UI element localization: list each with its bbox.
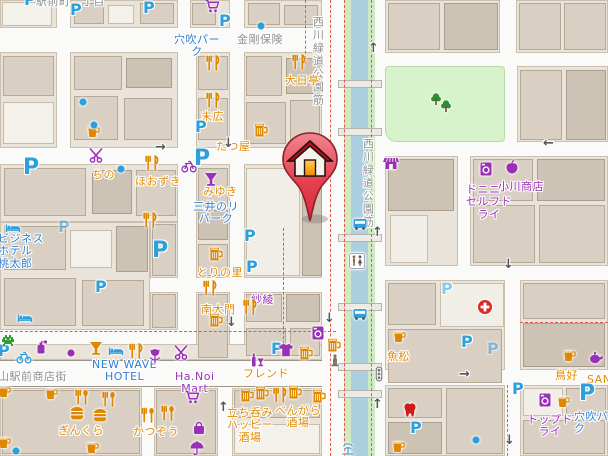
fork-spoon-icon <box>140 407 156 423</box>
parking-icon: P <box>244 228 256 244</box>
map-label: 穴吹パー ク <box>574 411 608 436</box>
parking-icon: P <box>143 0 155 16</box>
map-label: 大日亭 <box>285 75 320 87</box>
beer-icon <box>239 387 255 403</box>
fork-knife-icon <box>242 299 258 315</box>
oneway-arrow-down-icon: ↓ <box>504 434 515 447</box>
map-label: 三井のリ パーク <box>193 201 239 226</box>
parking-icon: P <box>24 0 36 8</box>
cup-icon <box>0 383 12 399</box>
dot-icon <box>75 94 91 110</box>
map-label: トップド ライ <box>527 414 573 439</box>
map-label: ほおずき <box>135 176 181 188</box>
cart-icon <box>204 0 220 14</box>
perfume-icon <box>33 339 49 355</box>
fork-knife-icon <box>291 54 307 70</box>
map-label: みゆき <box>203 186 238 198</box>
scissors-icon <box>89 148 105 164</box>
burger-icon <box>69 405 85 421</box>
tulip-icon <box>147 348 163 364</box>
apple-icon <box>504 159 520 175</box>
parking-icon: P <box>246 259 258 275</box>
fork-knife-icon <box>144 155 160 171</box>
parking-icon: P <box>58 219 70 235</box>
dot-icon <box>63 345 79 361</box>
oneway-arrow-up-icon: ↑ <box>368 42 379 55</box>
beer-icon <box>254 385 270 401</box>
destination-marker-pin[interactable] <box>281 132 339 226</box>
oneway-arrow-down-icon: ↓ <box>223 137 234 150</box>
cup-icon <box>84 439 100 455</box>
toilet-icon <box>349 253 365 269</box>
map-label: 山駅前商店街 <box>0 371 67 383</box>
washer-icon <box>310 325 326 341</box>
bag-icon <box>191 420 207 436</box>
cup-icon <box>561 347 577 363</box>
beer-icon <box>298 345 314 361</box>
map-label: 立ち呑み ハッピー 酒場 <box>227 407 273 444</box>
shop-icon <box>383 155 399 171</box>
dot-icon <box>86 117 102 133</box>
umbrella-icon <box>189 440 205 456</box>
oneway-arrow-down-icon: ↓ <box>503 258 514 271</box>
beer-icon <box>311 388 327 404</box>
beer-icon <box>208 246 224 262</box>
dot-icon <box>253 18 269 34</box>
oneway-arrow-right-icon: → <box>459 368 470 381</box>
scissors-icon <box>174 345 190 361</box>
washer-icon <box>537 392 553 408</box>
fork-knife-icon <box>128 343 144 359</box>
oneway-arrow-up-icon: ↑ <box>372 226 383 239</box>
bed-icon <box>108 342 124 358</box>
map-label: 鳥好 <box>555 370 578 382</box>
poi-layer: 駅前町二丁目金剛保険西川緑道公園筋西川緑道公園筋山駅前商店街穴吹パー ク三井のリ… <box>0 0 608 456</box>
parking-icon: P <box>195 119 207 135</box>
parking-icon: P <box>70 2 82 18</box>
parking-icon: P <box>219 13 231 29</box>
fork-spoon-icon <box>101 391 117 407</box>
map-label: 魚松 <box>387 351 410 363</box>
map-label: かつぞう <box>133 426 179 438</box>
parking-icon: P <box>410 420 422 436</box>
parking-icon: P <box>95 279 107 295</box>
dot-icon <box>468 432 484 448</box>
map-label: 西川緑道公園筋 <box>311 16 323 107</box>
oneway-arrow-up-icon: ↑ <box>372 398 383 411</box>
cup-icon <box>390 438 406 454</box>
fountain-icon <box>340 440 356 456</box>
beer-icon <box>287 384 303 400</box>
beer-icon <box>253 122 269 138</box>
oneway-arrow-right-icon: → <box>155 141 166 154</box>
bus-icon <box>352 216 368 232</box>
bottle-glass-icon <box>249 352 265 368</box>
map-canvas[interactable]: 駅前町二丁目金剛保険西川緑道公園筋西川緑道公園筋山駅前商店街穴吹パー ク三井のリ… <box>0 0 608 456</box>
bicycle-icon <box>16 349 32 365</box>
map-label: 小川商店 <box>498 181 544 193</box>
beer-icon <box>208 312 224 328</box>
cart-icon <box>184 389 200 405</box>
parking-icon: P <box>23 157 39 179</box>
map-label: フレンド <box>243 368 289 380</box>
parking-icon: P <box>441 281 453 297</box>
fork-knife-icon <box>272 387 288 403</box>
bicycle-icon <box>181 158 197 174</box>
map-label: べんがら 酒場 <box>275 405 321 430</box>
parking-icon: P <box>579 383 595 405</box>
beer-icon <box>326 337 342 353</box>
map-label: とりの里 <box>197 267 243 279</box>
oneway-arrow-down-icon: ↓ <box>226 316 237 329</box>
burger-icon <box>92 407 108 423</box>
tshirt-icon <box>278 342 294 358</box>
bed-icon <box>17 309 33 325</box>
oneway-arrow-up-icon: ↑ <box>218 401 229 414</box>
marker-shadow <box>302 215 328 224</box>
statue-icon <box>327 352 343 368</box>
oneway-arrow-left-icon: ← <box>543 137 554 150</box>
invader-icon <box>0 332 16 348</box>
fork-knife-icon <box>205 55 221 71</box>
map-label: ビジネス ホテル 桃太郎 <box>0 233 44 270</box>
fork-knife-icon <box>142 212 158 228</box>
cocktail-icon <box>88 340 104 356</box>
red-cross-icon <box>477 299 493 315</box>
dot-icon <box>113 161 129 177</box>
fork-spoon-icon <box>160 405 176 421</box>
parking-icon: P <box>152 240 168 262</box>
cup-icon <box>43 385 59 401</box>
parking-icon: P <box>461 334 473 350</box>
map-label: ぎんくら <box>58 425 104 437</box>
fork-knife-icon <box>202 280 218 296</box>
oneway-arrow-down-icon: ↓ <box>324 312 335 325</box>
cup-icon <box>391 328 407 344</box>
traffic-light-icon <box>371 366 387 382</box>
teapot-icon <box>588 349 604 365</box>
washer-icon <box>478 161 494 177</box>
tree-icon <box>438 98 454 114</box>
tooth-icon <box>402 402 418 418</box>
bed-icon <box>5 219 21 235</box>
parking-icon: P <box>487 341 499 357</box>
parking-icon: P <box>512 381 524 397</box>
map-label: ちの <box>92 169 115 181</box>
cup-icon <box>555 393 571 409</box>
map-label: 金剛保険 <box>237 34 283 46</box>
bus-icon <box>352 306 368 322</box>
dot-icon <box>8 443 24 456</box>
fork-knife-icon <box>205 92 221 108</box>
fork-spoon-icon <box>74 389 90 405</box>
cocktail-icon <box>203 171 219 187</box>
